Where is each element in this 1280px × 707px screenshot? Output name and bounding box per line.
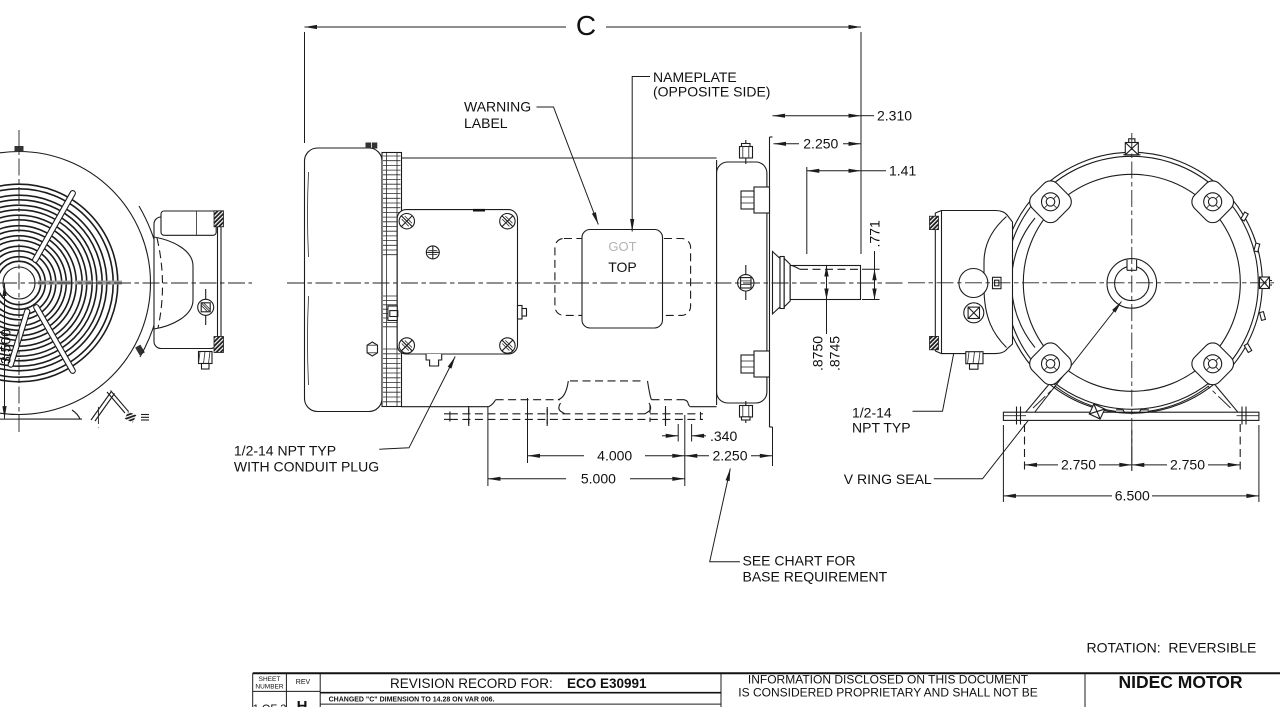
svg-text:GOT: GOT	[608, 239, 636, 254]
svg-text:NIDEC MOTOR: NIDEC MOTOR	[1118, 672, 1242, 692]
svg-text:NPT TYP: NPT TYP	[852, 420, 911, 436]
svg-text:REV: REV	[296, 679, 311, 686]
svg-text:IS CONSIDERED PROPRIETARY AND: IS CONSIDERED PROPRIETARY AND SHALL NOT …	[738, 686, 1037, 700]
svg-text:1/2-14: 1/2-14	[852, 405, 892, 421]
svg-text:2.250: 2.250	[803, 136, 838, 152]
svg-text:TOP: TOP	[608, 259, 637, 275]
svg-text:5.000: 5.000	[581, 471, 616, 487]
svg-text:.771: .771	[867, 220, 883, 247]
svg-text:H: H	[297, 698, 308, 707]
svg-text:WITH CONDUIT PLUG: WITH CONDUIT PLUG	[234, 459, 379, 475]
svg-text:.340: .340	[710, 428, 737, 444]
svg-text:3.500: 3.500	[0, 329, 14, 364]
svg-text:6.500: 6.500	[1115, 488, 1150, 504]
svg-text:NUMBER: NUMBER	[255, 684, 283, 691]
svg-text:.8745: .8745	[827, 336, 843, 371]
svg-text:V RING SEAL: V RING SEAL	[844, 471, 932, 487]
svg-text:SHEET: SHEET	[259, 676, 281, 683]
svg-text:2.310: 2.310	[877, 108, 912, 124]
svg-text:ECO E30991: ECO E30991	[567, 676, 647, 691]
svg-text:LABEL: LABEL	[464, 115, 508, 131]
svg-text:INFORMATION DISCLOSED ON THIS: INFORMATION DISCLOSED ON THIS DOCUMENT	[748, 673, 1029, 687]
svg-text:ROTATION: REVERSIBLE: ROTATION: REVERSIBLE	[1087, 640, 1257, 656]
svg-text:.8750: .8750	[810, 336, 826, 371]
svg-text:REVISION RECORD FOR:: REVISION RECORD FOR:	[390, 676, 553, 691]
svg-text:2.750: 2.750	[1061, 457, 1096, 473]
svg-text:1/2-14 NPT TYP: 1/2-14 NPT TYP	[234, 443, 336, 459]
svg-text:WARNING: WARNING	[464, 99, 531, 115]
svg-text:2.250: 2.250	[712, 448, 747, 464]
svg-text:CHANGED "C" DIMENSION TO 14.28: CHANGED "C" DIMENSION TO 14.28 ON VAR 00…	[329, 697, 495, 704]
svg-text:C: C	[576, 10, 596, 41]
svg-text:4.000: 4.000	[597, 448, 632, 464]
svg-text:BASE REQUIREMENT: BASE REQUIREMENT	[743, 569, 888, 585]
svg-text:1.41: 1.41	[889, 163, 916, 179]
svg-text:1 OF 2: 1 OF 2	[253, 703, 287, 707]
svg-text:2.750: 2.750	[1170, 457, 1205, 473]
svg-text:(OPPOSITE SIDE): (OPPOSITE SIDE)	[653, 84, 770, 100]
svg-text:SEE CHART FOR: SEE CHART FOR	[743, 553, 856, 569]
